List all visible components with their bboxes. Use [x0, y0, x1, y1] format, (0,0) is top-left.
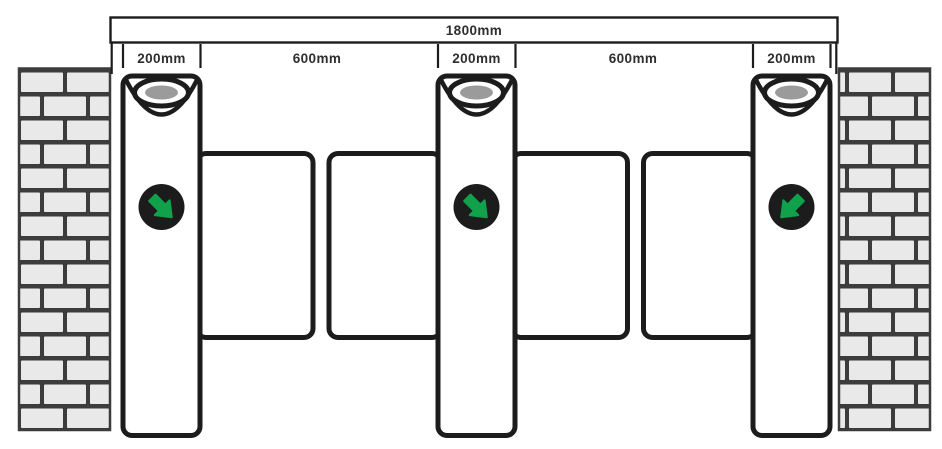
right-brick-wall	[839, 69, 930, 431]
segment-label-passage-2: 600mm	[609, 51, 658, 66]
card-reader-window	[775, 86, 808, 100]
left-brick-wall	[19, 69, 110, 431]
flap-barrier-1b	[329, 154, 441, 338]
flap-barrier-2b	[644, 154, 757, 338]
turnstile-pillar-1	[123, 76, 200, 436]
diagram-canvas: 1800mm 200mm 600mm 200mm 600mm 200mm	[0, 0, 942, 449]
card-reader-window	[460, 86, 493, 100]
flap-barrier-2a	[512, 154, 628, 338]
pillar-body	[123, 76, 200, 436]
segment-label-pillar-1: 200mm	[137, 51, 186, 66]
segment-label-pillar-3: 200mm	[767, 51, 816, 66]
card-reader-window	[145, 86, 178, 100]
turnstile-pillar-3	[753, 76, 830, 436]
flap-barrier-1a	[197, 154, 313, 338]
segment-label-passage-1: 600mm	[293, 51, 342, 66]
segment-label-pillar-2: 200mm	[452, 51, 501, 66]
turnstile-dimension-diagram: 1800mm 200mm 600mm 200mm 600mm 200mm	[0, 0, 942, 449]
overall-dimension-label: 1800mm	[446, 23, 502, 38]
turnstile-pillar-2	[438, 76, 515, 436]
pillar-body	[438, 76, 515, 436]
pillar-body	[753, 76, 830, 436]
